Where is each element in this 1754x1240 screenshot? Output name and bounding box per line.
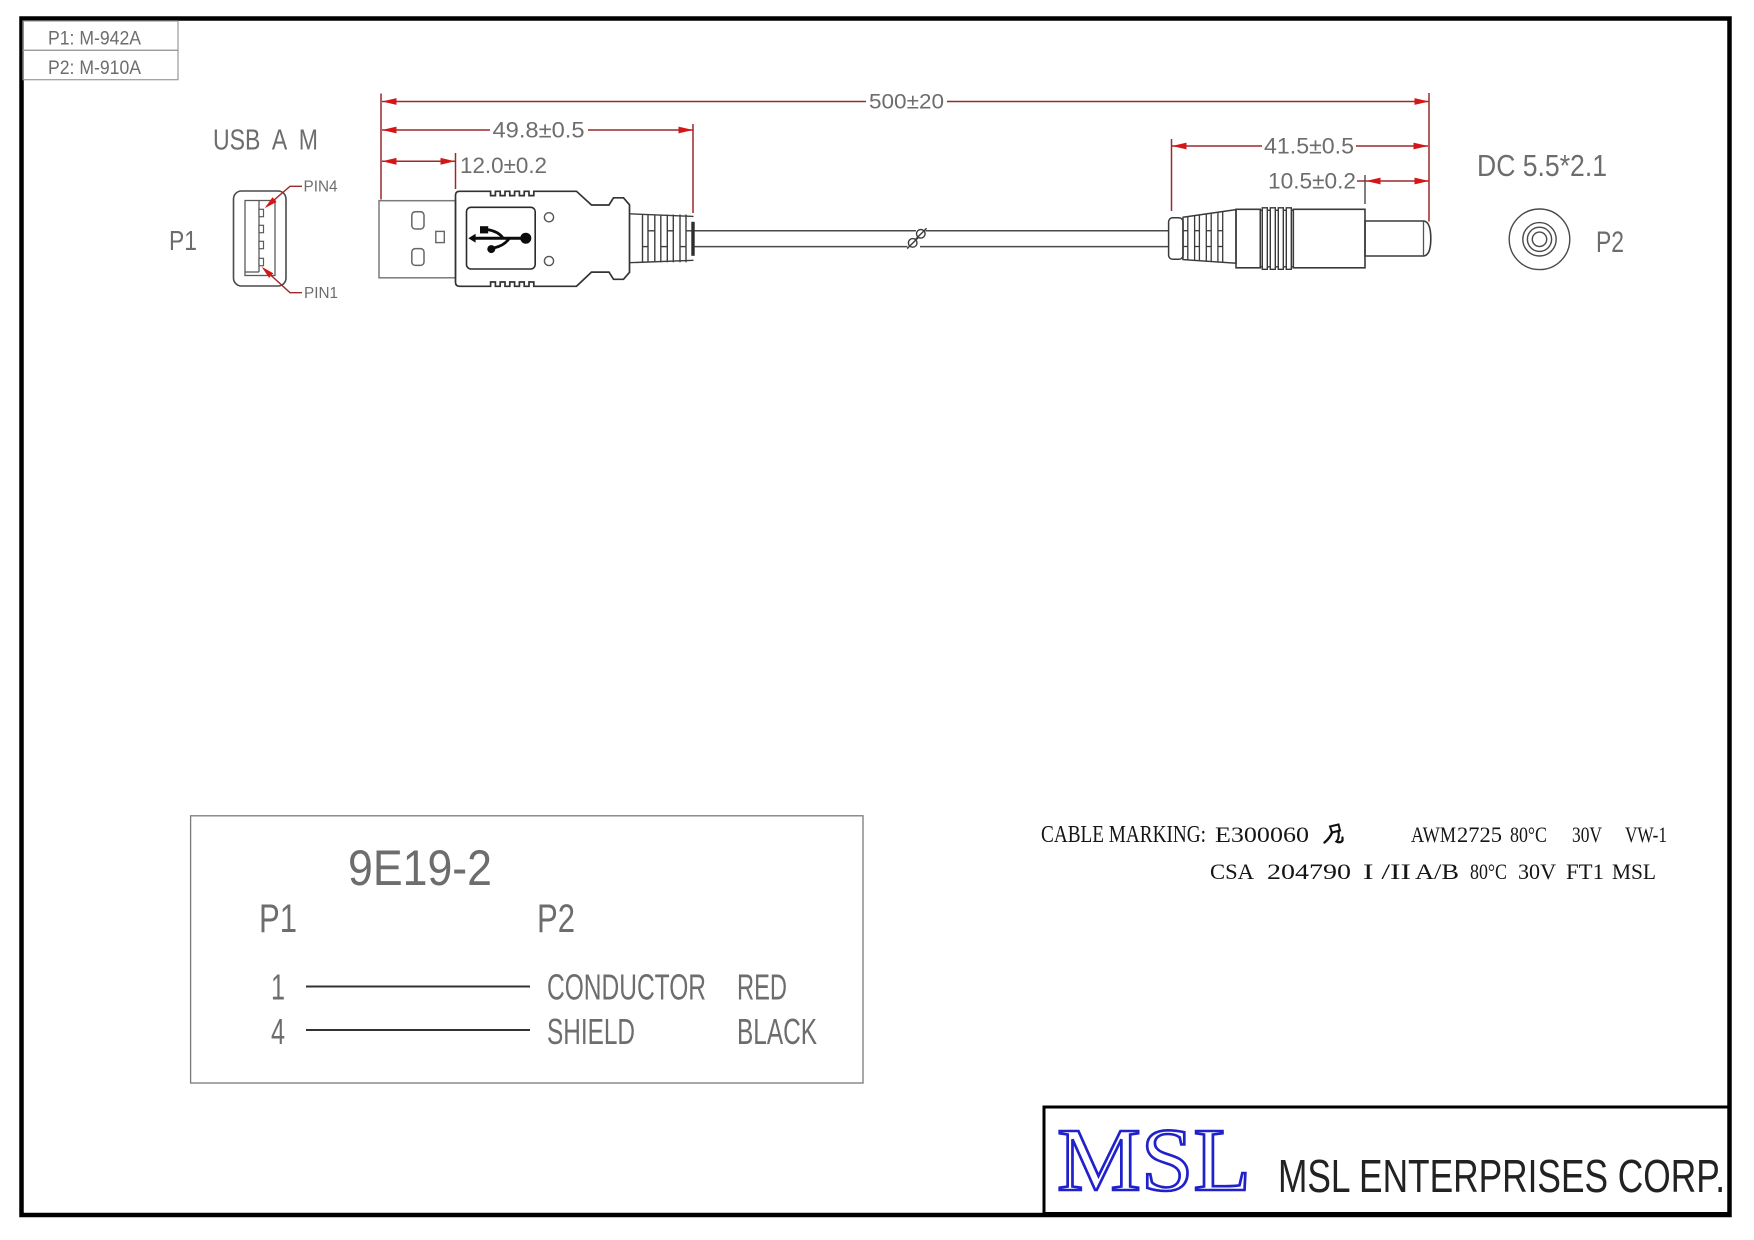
svg-text:E300060: E300060	[1215, 822, 1309, 847]
svg-text:10.5±0.2: 10.5±0.2	[1268, 169, 1356, 194]
svg-text:12.0±0.2: 12.0±0.2	[460, 153, 547, 178]
svg-text:9E19-2: 9E19-2	[348, 840, 492, 896]
svg-text:RED: RED	[737, 967, 787, 1008]
svg-text:P2: P2	[1596, 226, 1624, 259]
svg-text:41.5±0.5: 41.5±0.5	[1264, 134, 1354, 159]
svg-text:A/B: A/B	[1415, 859, 1459, 884]
svg-text:FT1: FT1	[1566, 859, 1604, 884]
svg-text:80°C: 80°C	[1510, 822, 1547, 847]
svg-text:CONDUCTOR: CONDUCTOR	[547, 967, 706, 1008]
svg-text:2725: 2725	[1457, 822, 1502, 847]
svg-text:MSL: MSL	[1612, 859, 1656, 884]
svg-text:AWM: AWM	[1411, 822, 1456, 847]
svg-text:P2: P2	[537, 897, 575, 941]
svg-text:CABLE MARKING:: CABLE MARKING:	[1041, 822, 1206, 848]
svg-text:VW-1: VW-1	[1625, 822, 1667, 847]
svg-text:BLACK: BLACK	[737, 1011, 817, 1052]
svg-text:SHIELD: SHIELD	[547, 1011, 635, 1052]
svg-text:I /II: I /II	[1363, 859, 1411, 884]
svg-text:1: 1	[271, 967, 285, 1008]
svg-text:MSL: MSL	[1057, 1111, 1251, 1210]
svg-text:CSA: CSA	[1210, 859, 1255, 884]
svg-text:PIN1: PIN1	[304, 285, 338, 302]
svg-text:P1: M-942A: P1: M-942A	[48, 29, 141, 50]
svg-text:DC 5.5*2.1: DC 5.5*2.1	[1477, 148, 1607, 183]
svg-text:PIN4: PIN4	[304, 179, 338, 196]
svg-text:30V: 30V	[1518, 859, 1556, 884]
svg-text:80°C: 80°C	[1470, 859, 1507, 884]
svg-text:500±20: 500±20	[869, 90, 944, 114]
svg-text:30V: 30V	[1572, 822, 1602, 847]
svg-text:204790: 204790	[1267, 859, 1351, 884]
svg-text:P1: P1	[259, 897, 297, 941]
svg-text:4: 4	[271, 1011, 285, 1052]
svg-text:MSL ENTERPRISES CORP.: MSL ENTERPRISES CORP.	[1278, 1150, 1725, 1202]
svg-text:P2: M-910A: P2: M-910A	[48, 58, 141, 79]
svg-text:49.8±0.5: 49.8±0.5	[493, 118, 585, 143]
svg-text:USB A M: USB A M	[213, 125, 318, 157]
svg-text:P1: P1	[169, 225, 197, 256]
